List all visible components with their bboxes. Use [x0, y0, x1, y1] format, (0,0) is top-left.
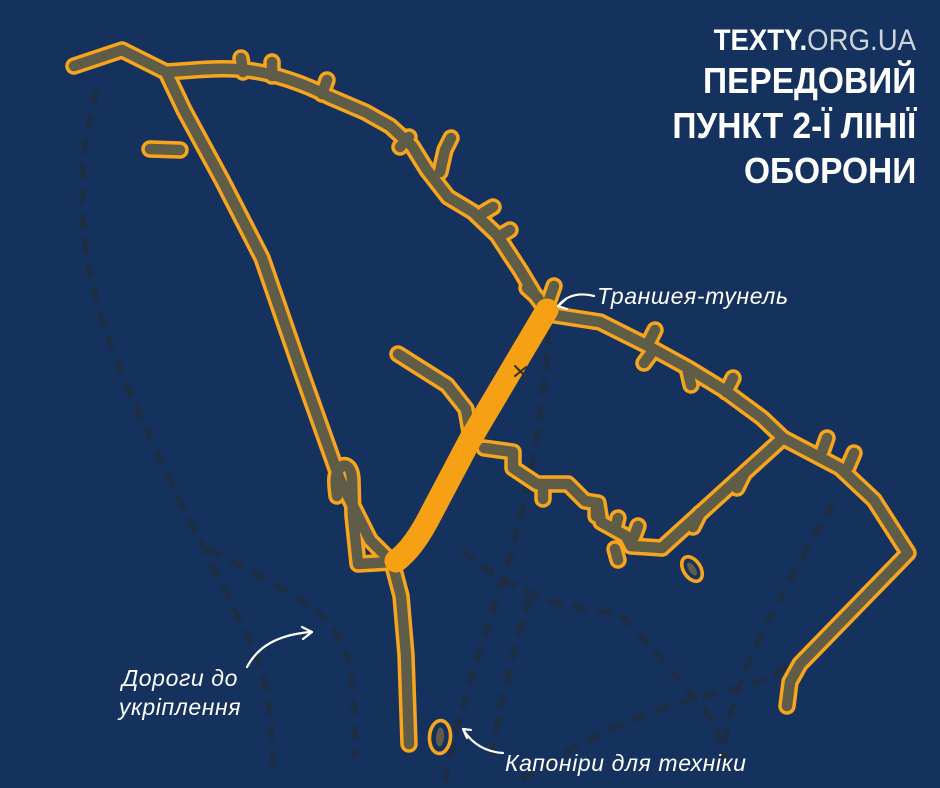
label-roads-line1: Дороги до [100, 664, 260, 693]
title-line-3: ОБОРОНИ [672, 148, 916, 193]
label-trench-tunnel: Траншея-тунель [597, 283, 789, 310]
caponier-oval-bottom [428, 720, 451, 754]
title-line-2: ПУНКТ 2-Ї ЛІНІЇ [672, 103, 916, 148]
label-caponiers: Капоніри для техніки [505, 750, 747, 777]
road-path [208, 548, 355, 758]
label-roads: Дороги до укріплення [100, 664, 260, 722]
brand-logo[interactable]: TEXTY.ORG.UA [714, 24, 916, 58]
page-title: ПЕРЕДОВИЙ ПУНКТ 2-Ї ЛІНІЇ ОБОРОНИ [672, 58, 916, 193]
brand-bold: TEXTY. [714, 24, 808, 57]
label-roads-line2: укріплення [100, 693, 260, 722]
road-path [492, 597, 530, 756]
arrow-to-tunnel [558, 294, 594, 309]
road-path [721, 502, 833, 762]
title-line-1: ПЕРЕДОВИЙ [672, 58, 916, 103]
brand-rest: ORG.UA [807, 24, 916, 57]
trench-tunnel-highlight [396, 310, 547, 561]
infographic-root: TEXTY.ORG.UA ПЕРЕДОВИЙ ПУНКТ 2-Ї ЛІНІЇ О… [0, 0, 940, 788]
caponier-oval-right [678, 553, 707, 585]
